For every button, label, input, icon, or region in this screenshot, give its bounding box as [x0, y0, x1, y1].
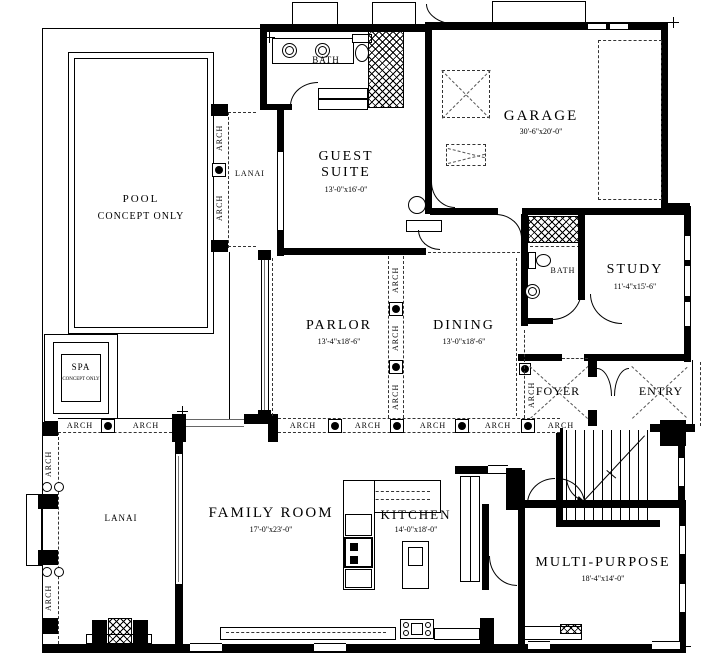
arch-label: ARCH [126, 421, 166, 430]
garage-bottom-wall [430, 208, 498, 215]
double-door-arc [614, 368, 629, 396]
deck-edge-top [42, 28, 264, 29]
column-marker [455, 419, 469, 433]
multi-purpose-dims: 18'-4"x14'-0" [528, 574, 678, 583]
survey-cross [264, 32, 275, 43]
arch-label: ARCH [44, 446, 55, 482]
colonnade-dashed [403, 256, 404, 418]
buffet-hatch [560, 624, 582, 634]
colonnade-dashed [388, 256, 389, 418]
window [684, 302, 691, 326]
column-block [258, 410, 271, 420]
arch-label: ARCH [283, 421, 323, 430]
floor-plan: POOL CONCEPT ONLY SPA CONCEPT ONLY ARCH … [0, 0, 725, 656]
garage-bottom-wall [522, 208, 686, 215]
stair-bottom-wall [556, 520, 660, 527]
window [679, 584, 686, 612]
column-marker [328, 419, 342, 433]
guest-suite-label: SUITE [298, 166, 394, 181]
foyer-edge-dashed [524, 366, 525, 418]
window [314, 643, 346, 652]
exterior-wall [430, 22, 668, 30]
spa-note: CONCEPT ONLY [56, 377, 106, 382]
column-block [211, 240, 228, 252]
window [684, 236, 691, 260]
round-column [408, 196, 426, 214]
foyer-label: FOYER [530, 385, 586, 398]
cased-opening [562, 358, 588, 359]
garage-label: GARAGE [486, 109, 596, 125]
multi-purpose-left-wall [518, 506, 525, 646]
counter-dashed [226, 632, 386, 633]
arch-label: ARCH [540, 421, 582, 430]
column-block [211, 104, 228, 116]
window-seat [220, 627, 396, 640]
window [678, 458, 685, 486]
bath-mid-bottom-wall [521, 318, 553, 324]
arch-label: ARCH [478, 421, 518, 430]
pool-note: CONCEPT ONLY [72, 212, 210, 223]
family-room-left-wall [175, 584, 183, 648]
spa-label: SPA [61, 363, 101, 372]
survey-cross [668, 17, 679, 28]
arch-label: ARCH [348, 421, 388, 430]
lanai-edge-dashed [58, 432, 59, 644]
column-block [258, 250, 271, 260]
bath-mid-left-wall [521, 214, 528, 326]
column-block [38, 494, 58, 509]
counter-line [470, 476, 471, 582]
guest-suite-dims: 13'-0"x16'-0" [298, 185, 394, 194]
guest-suite-label: GUEST [298, 150, 394, 165]
window [277, 152, 284, 230]
arch-label: ARCH [215, 120, 226, 156]
burner-icon [403, 622, 409, 628]
study-label: STUDY [598, 263, 672, 278]
sink-icon [282, 43, 297, 58]
cooktop-center [411, 623, 423, 635]
window [488, 465, 508, 474]
cased-opening [524, 330, 525, 362]
window [190, 643, 222, 652]
multi-purpose-label: MULTI-PURPOSE [528, 556, 678, 571]
window-box [292, 2, 338, 25]
sliding-door [186, 419, 244, 427]
fireplace-side [92, 620, 107, 644]
window-box [372, 2, 416, 25]
lanai-edge-dashed [228, 112, 256, 113]
door-arc [431, 182, 455, 208]
study-dims: 11'-4"x15'-6" [598, 282, 672, 291]
arch-label: ARCH [60, 421, 100, 430]
window [588, 23, 606, 30]
lanai-lower-label: LANAI [98, 514, 144, 523]
arch-label: ARCH [44, 580, 55, 616]
fireplace-hatch [108, 618, 132, 644]
guest-suite-bottom-wall [284, 248, 426, 255]
multi-purpose-top-wall [524, 500, 686, 508]
closet-shelf-line [530, 246, 580, 247]
door-arc [489, 556, 517, 586]
arch-label: ARCH [391, 380, 402, 414]
pantry-wall [482, 504, 489, 590]
sliding-door-line [264, 260, 265, 410]
oven-glyph [350, 543, 358, 551]
porch-edge [692, 360, 693, 426]
family-room-left-wall [175, 428, 183, 454]
kitchen-dims: 14'-0"x18'-0" [378, 525, 454, 534]
dining-label: DINING [426, 319, 502, 334]
sliding-glass-door [175, 454, 183, 584]
round-column [54, 567, 64, 577]
door-arc [290, 82, 318, 106]
garage-door-dashed [598, 40, 662, 200]
column-marker [101, 419, 115, 433]
appliance [345, 569, 372, 588]
window [652, 641, 680, 650]
lanai-edge-dashed [228, 246, 256, 247]
toilet-tank-icon [528, 252, 536, 269]
door-arc [496, 214, 522, 238]
oven-icon [344, 537, 373, 568]
stair-left-wall [556, 428, 563, 526]
kitchen-label: KITCHEN [378, 508, 454, 522]
guest-suite-left-wall [277, 110, 284, 152]
double-door-arc [597, 368, 612, 396]
parlor-ceiling-dashed [272, 258, 273, 416]
window [528, 641, 550, 650]
fireplace-side [133, 620, 148, 644]
guest-suite-left-wall [277, 230, 284, 256]
dining-ceiling-dashed [428, 252, 520, 253]
column-marker [389, 360, 403, 374]
lanai-edge-dashed [228, 112, 229, 248]
bath-upper-label: BATH [300, 56, 352, 65]
burner-icon [403, 630, 409, 636]
lanai-upper-label: LANAI [230, 170, 270, 178]
column-marker [521, 419, 535, 433]
arch-label: ARCH [391, 262, 402, 298]
family-room-label: FAMILY ROOM [195, 506, 347, 522]
sliding-door-line [178, 456, 179, 582]
oven-glyph [350, 556, 358, 564]
appliance [345, 514, 372, 536]
window [610, 23, 628, 30]
door-arc [590, 294, 622, 324]
parlor-dims: 13'-4"x18'-6" [300, 337, 378, 346]
window [684, 266, 691, 296]
burner-icon [425, 622, 431, 628]
toilet-bowl-icon [536, 254, 551, 267]
toilet-bowl-icon [355, 44, 369, 62]
shelf [318, 99, 368, 110]
round-column [42, 482, 52, 492]
wall-corner [660, 420, 686, 446]
bath-study-wall [578, 214, 585, 300]
burner-icon [425, 630, 431, 636]
wall-stub [588, 360, 597, 377]
pool-label: POOL [85, 194, 197, 206]
survey-cross [177, 406, 188, 417]
window [679, 526, 686, 554]
column-block [42, 422, 58, 436]
exterior-wall-bottom [42, 644, 686, 653]
sliding-glass-door [261, 258, 269, 412]
round-column [54, 482, 64, 492]
foyer-top-wall [588, 354, 688, 361]
island-sink-icon [408, 547, 423, 566]
door-arc [418, 230, 440, 250]
column-marker [389, 302, 403, 316]
porch-edge-dashed [700, 362, 701, 426]
arch-label: ARCH [391, 320, 402, 356]
garage-dims: 30'-6"x20'-0" [486, 127, 596, 136]
column-block [38, 550, 58, 565]
wall [260, 104, 292, 110]
garage-right-wall [661, 22, 668, 210]
dining-dims: 13'-0"x18'-6" [426, 337, 502, 346]
counter [434, 628, 480, 640]
arch-label: ARCH [215, 190, 226, 226]
family-room-dims: 17'-0"x23'-0" [195, 525, 347, 534]
shower-hatch [368, 30, 404, 108]
shower-hatch [528, 216, 583, 243]
deck-edge-inner [229, 252, 230, 420]
column-block [42, 618, 58, 634]
column-marker [212, 163, 226, 177]
exterior-wall [260, 24, 432, 32]
entry-label: ENTRY [632, 385, 690, 398]
wall-stub [588, 410, 597, 426]
arch-label: ARCH [413, 421, 453, 430]
round-column [42, 567, 52, 577]
dining-ceiling-dashed [516, 258, 517, 416]
shelf [318, 88, 368, 99]
column-marker [390, 419, 404, 433]
parlor-label: PARLOR [300, 319, 378, 334]
multi-purpose-left-wall [518, 470, 525, 506]
wall-stub [480, 618, 494, 645]
sink-icon [525, 284, 540, 299]
window-box [492, 1, 586, 23]
